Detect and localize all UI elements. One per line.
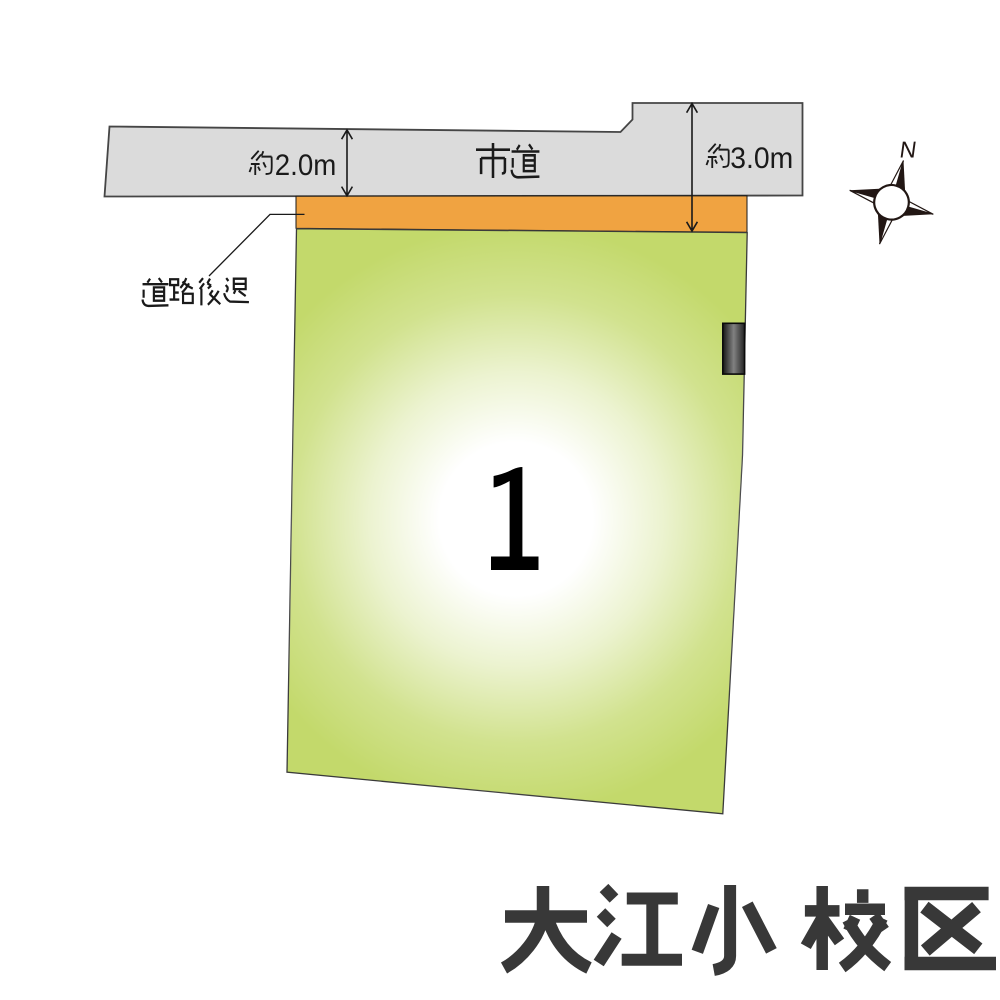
svg-text:2.0m: 2.0m — [275, 149, 337, 182]
svg-text:3.0m: 3.0m — [730, 142, 793, 175]
